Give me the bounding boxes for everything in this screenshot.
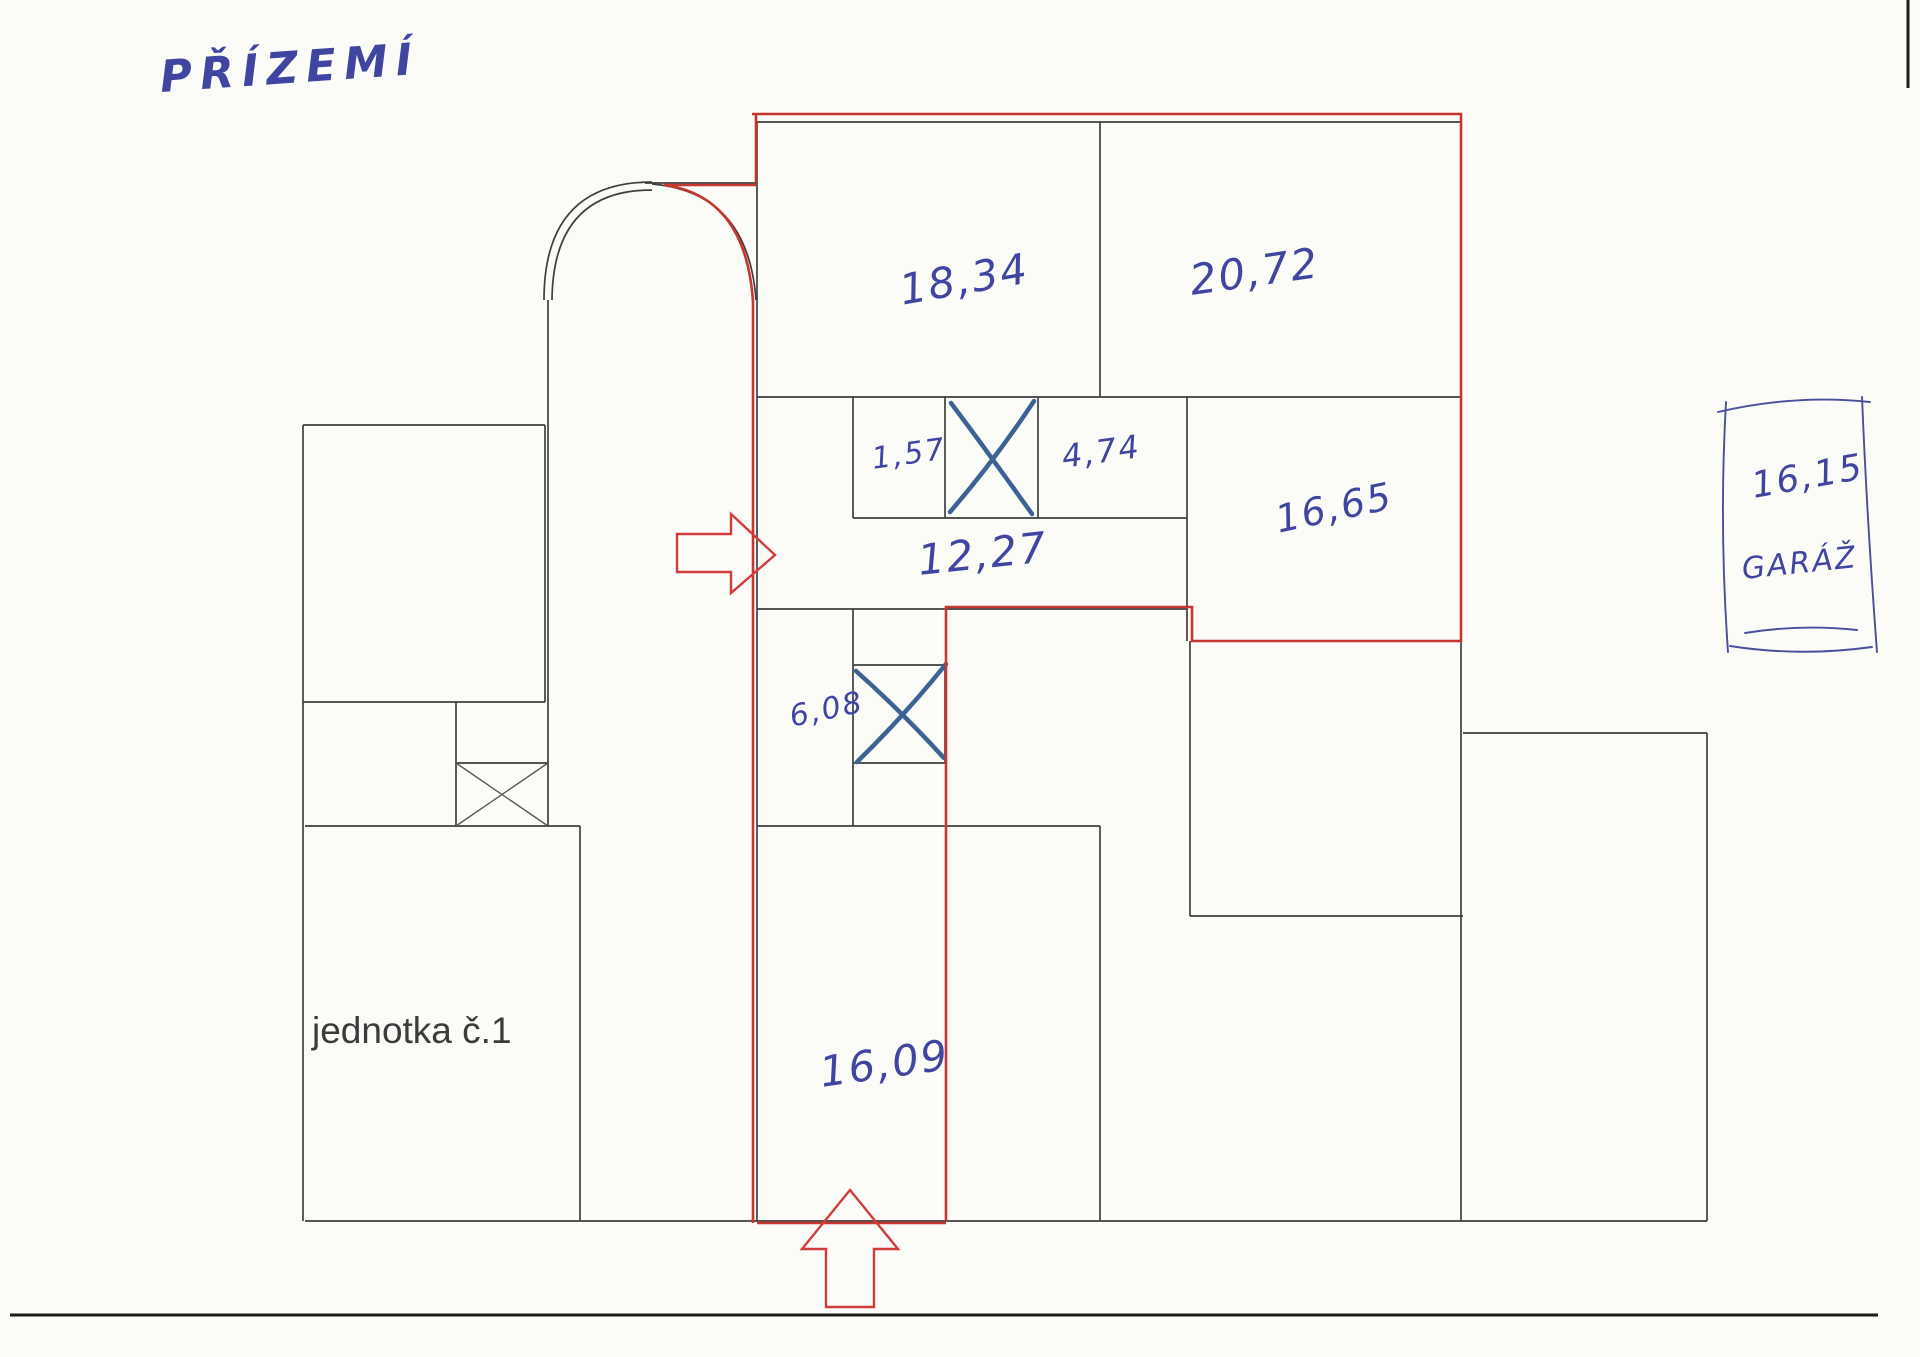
scanned-floor-plan-page: PŘÍZEMÍ 18,34 20,72 1,57 4,74 16,65 12,2…: [0, 0, 1920, 1357]
unit-1-label: jednotka č.1: [312, 1010, 512, 1052]
scan-edge-artifacts: [10, 0, 1908, 1315]
crossed-box-left-icon: [456, 763, 548, 826]
crossed-box-lower-icon: [856, 664, 946, 762]
entrance-arrow-up-icon: [802, 1190, 898, 1307]
crossed-box-middle-icon: [950, 401, 1034, 514]
unit-boundary-red: [664, 114, 1461, 1223]
floor-plan-drawing: [0, 0, 1920, 1357]
garage-box-outline: [1718, 397, 1877, 652]
direction-arrow-right-icon: [677, 514, 775, 593]
